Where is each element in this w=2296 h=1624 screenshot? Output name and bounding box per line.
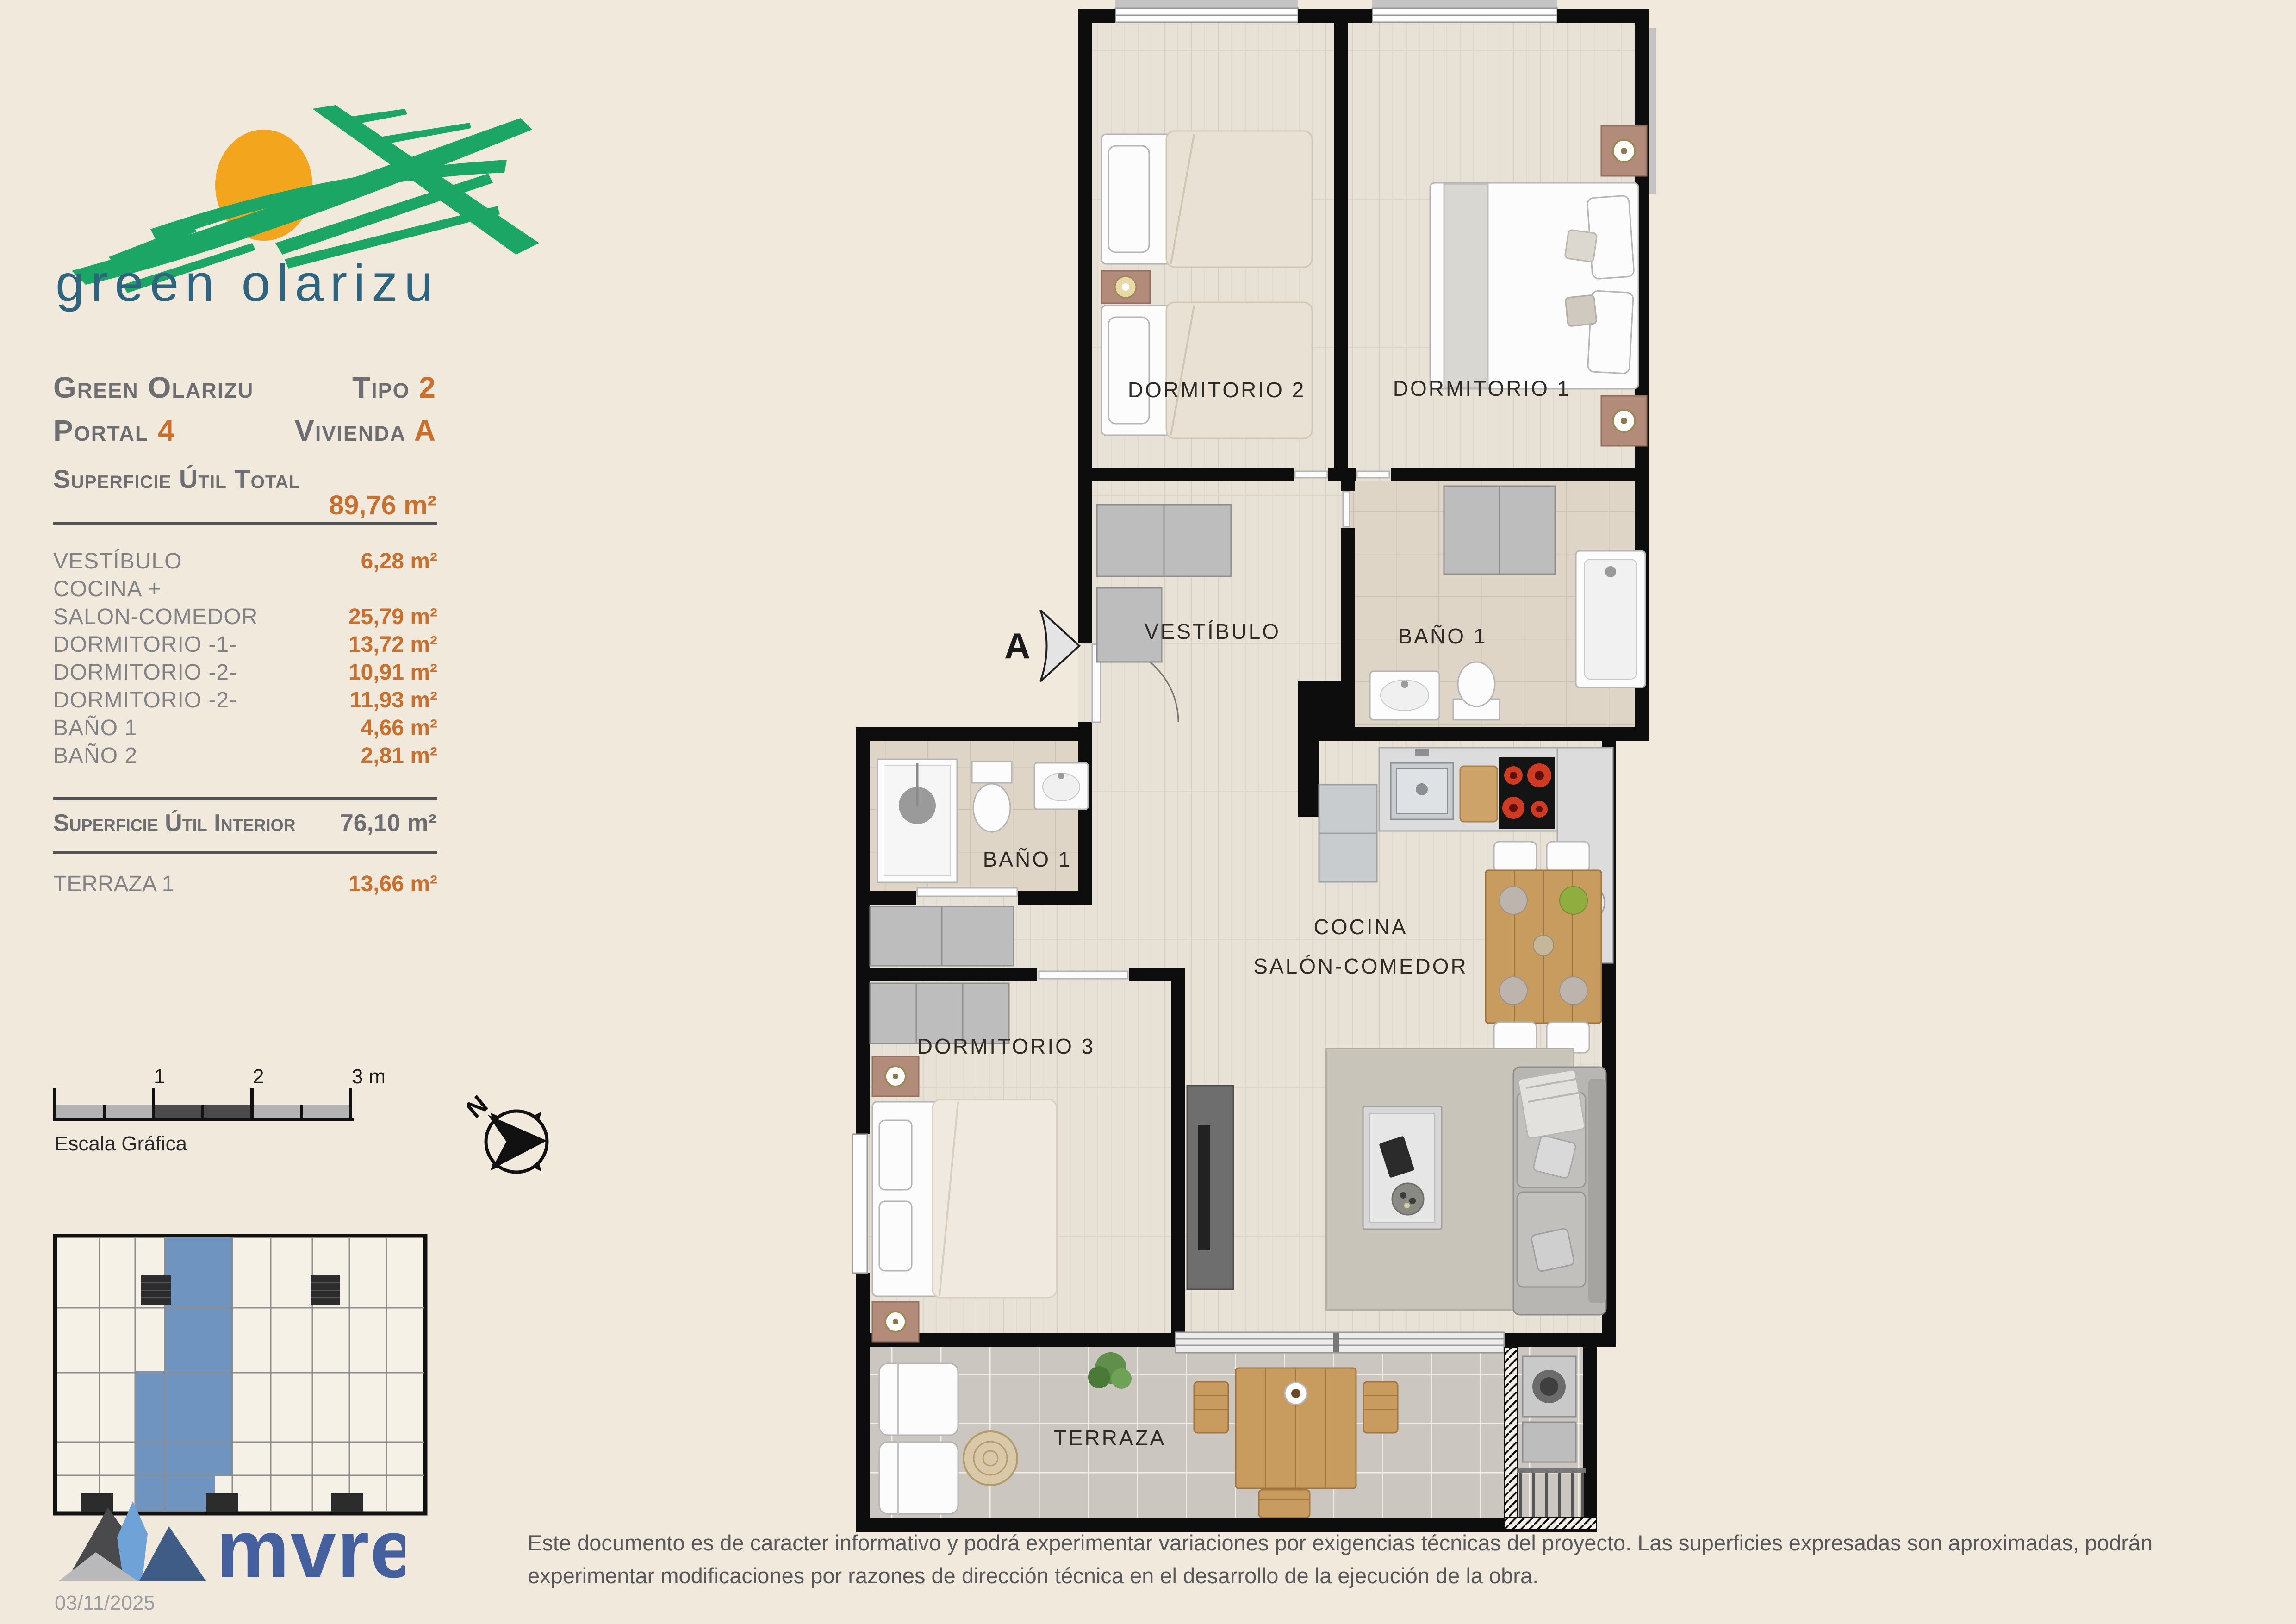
scale-caption: Escala Gráfica — [55, 1132, 187, 1156]
floor-terrace — [856, 1343, 1597, 1532]
terrace-row: TERRAZA 1 13,66 m² — [53, 871, 437, 897]
room-label-cocina: COCINA — [1314, 915, 1408, 939]
area-table: VESTÍBULO6,28 m² COCINA + SALON-COMEDOR2… — [53, 547, 437, 769]
table-row: DORMITORIO -1-13,72 m² — [53, 631, 437, 658]
scale-tick-label: 2 — [253, 1065, 264, 1088]
north-label: N — [467, 1093, 493, 1124]
entry-letter: A — [1004, 625, 1030, 666]
room-label-salon: SALÓN-COMEDOR — [1253, 954, 1468, 978]
table-row: BAÑO 22,81 m² — [53, 742, 437, 769]
row-label: SALON-COMEDOR — [53, 604, 258, 630]
row-value: 11,93 m² — [350, 687, 437, 713]
table-row: BAÑO 14,66 m² — [53, 714, 437, 742]
divider — [53, 522, 437, 525]
tipo-title: Tipo 2 — [53, 370, 436, 405]
room-label-dorm2: DORMITORIO 2 — [1128, 378, 1306, 402]
total-area-value: 89,76 m² — [53, 490, 436, 521]
interior-area-value: 76,10 m² — [53, 809, 436, 837]
row-value: 10,91 m² — [348, 660, 437, 685]
table-row: DORMITORIO -2-11,93 m² — [53, 686, 437, 714]
logo-wordmark: green olarizu — [56, 254, 440, 312]
tipo-value: 2 — [419, 371, 436, 404]
scale-tick-label: 1 — [154, 1065, 165, 1088]
room-label-bano1-left: BAÑO 1 — [983, 847, 1072, 871]
mvre-wordmark: mvre — [216, 1503, 405, 1590]
row-value: 25,79 m² — [348, 604, 437, 630]
portal-label: Portal — [53, 414, 158, 447]
row-label: DORMITORIO -2- — [53, 687, 237, 713]
table-row: SALON-COMEDOR25,79 m² — [53, 603, 437, 631]
document-date: 03/11/2025 — [55, 1592, 155, 1615]
row-label: DORMITORIO -1- — [53, 632, 237, 657]
north-arrow-icon: N — [467, 1093, 569, 1194]
row-value: 2,81 m² — [361, 743, 437, 768]
row-label: DORMITORIO -2- — [53, 660, 237, 685]
table-row: VESTÍBULO6,28 m² — [53, 547, 437, 575]
table-row: DORMITORIO -2-10,91 m² — [53, 658, 437, 686]
room-label-dorm3: DORMITORIO 3 — [917, 1034, 1095, 1058]
row-label: BAÑO 1 — [53, 715, 137, 741]
mvre-logo: mvre — [53, 1498, 405, 1590]
portal-title: Portal 4 — [53, 413, 175, 448]
scale-tick-label: 3 m. — [352, 1065, 384, 1088]
row-value: 6,28 m² — [361, 549, 437, 574]
row-value: 4,66 m² — [361, 715, 437, 741]
divider — [53, 797, 437, 800]
room-label-dorm1: DORMITORIO 1 — [1393, 376, 1571, 400]
vivienda-value: A — [414, 414, 436, 447]
mvre-mountains-icon — [59, 1501, 206, 1581]
room-label-bano1-right: BAÑO 1 — [1398, 624, 1487, 648]
row-value: 13,66 m² — [348, 871, 437, 897]
window — [852, 1134, 867, 1273]
divider — [53, 851, 437, 854]
row-label: TERRAZA 1 — [53, 871, 174, 897]
floor-plan: A DORMITORIO 2 DORMITORIO 1 VESTÍBULO BA… — [842, 0, 1657, 1546]
row-label: VESTÍBULO — [53, 549, 182, 574]
row-value: 13,72 m² — [348, 632, 437, 657]
key-plan — [53, 1234, 428, 1518]
entry-marker: A — [1004, 610, 1079, 681]
terrace-window — [1176, 1332, 1504, 1353]
vivienda-title: Vivienda A — [248, 413, 436, 448]
row-label: COCINA + — [53, 576, 161, 602]
brand-logo: green olarizu — [53, 90, 553, 312]
portal-value: 4 — [158, 414, 175, 447]
tipo-label: Tipo — [352, 371, 419, 404]
dining-table — [1486, 842, 1601, 1053]
room-label-terraza: TERRAZA — [1054, 1426, 1166, 1450]
vivienda-label: Vivienda — [294, 414, 414, 447]
row-label: BAÑO 2 — [53, 743, 137, 768]
room-label-vestibulo: VESTÍBULO — [1145, 619, 1281, 643]
scale-bar: 1 2 3 m. — [51, 1060, 384, 1130]
entry-arrow-icon — [1040, 610, 1079, 681]
table-row: COCINA + — [53, 575, 437, 603]
